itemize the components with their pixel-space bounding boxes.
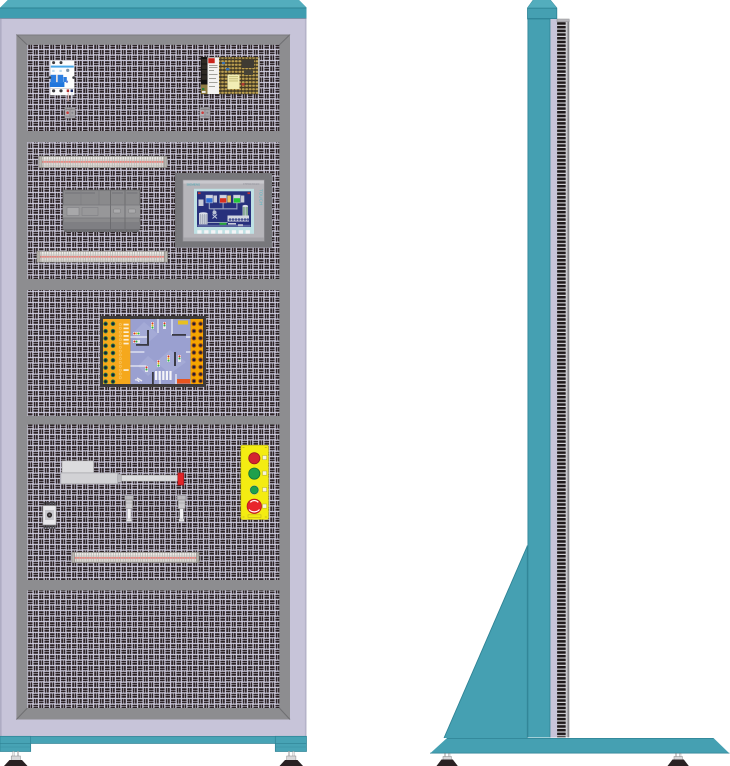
svg-text:SIEMENS: SIEMENS	[187, 183, 201, 187]
svg-text:KTP600 BASIC: KTP600 BASIC	[243, 183, 260, 186]
svg-text:TOUCH: TOUCH	[259, 189, 264, 205]
